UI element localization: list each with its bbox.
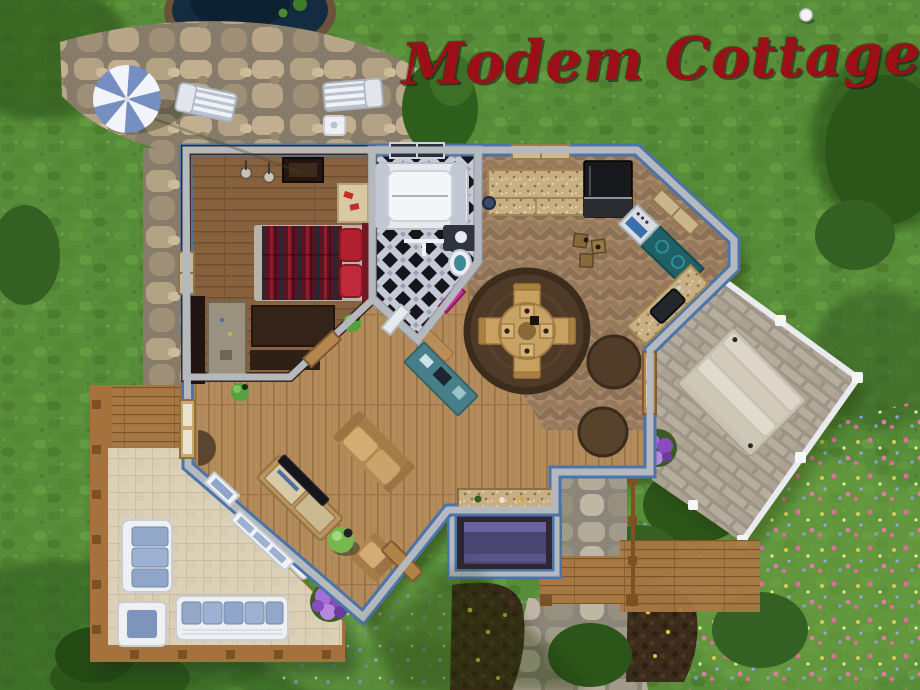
wall-art[interactable] <box>283 158 323 182</box>
closet-shelves[interactable] <box>190 296 205 384</box>
deck-bench[interactable] <box>176 596 288 640</box>
double-bed[interactable] <box>254 223 375 303</box>
bathtub[interactable] <box>374 163 468 229</box>
lounge-chair[interactable] <box>323 78 383 111</box>
kitchen-counter[interactable] <box>488 170 585 215</box>
dining-table[interactable] <box>499 303 555 359</box>
deck-side-table[interactable] <box>118 602 166 646</box>
round-door-rug[interactable] <box>588 336 640 388</box>
trash-bin[interactable] <box>483 197 495 209</box>
nightstand[interactable] <box>338 184 368 222</box>
wood-porch <box>620 540 760 612</box>
patio-side-table[interactable] <box>324 116 345 135</box>
living-west-window[interactable] <box>180 400 195 458</box>
refrigerator[interactable] <box>584 161 632 217</box>
lot-title: Modem Cottage <box>401 21 913 124</box>
wall-sconce[interactable] <box>231 383 249 401</box>
lily-pad <box>279 9 288 18</box>
pillow <box>340 229 362 261</box>
deck-ramp <box>112 386 190 448</box>
deck-loveseat[interactable] <box>122 520 172 592</box>
pillow <box>340 265 362 297</box>
lot-overview: Modem Cottage <box>0 0 920 690</box>
wardrobe[interactable] <box>208 302 246 378</box>
entry-landing <box>553 474 627 556</box>
dining-area <box>467 271 587 391</box>
round-door-rug[interactable] <box>579 408 627 456</box>
